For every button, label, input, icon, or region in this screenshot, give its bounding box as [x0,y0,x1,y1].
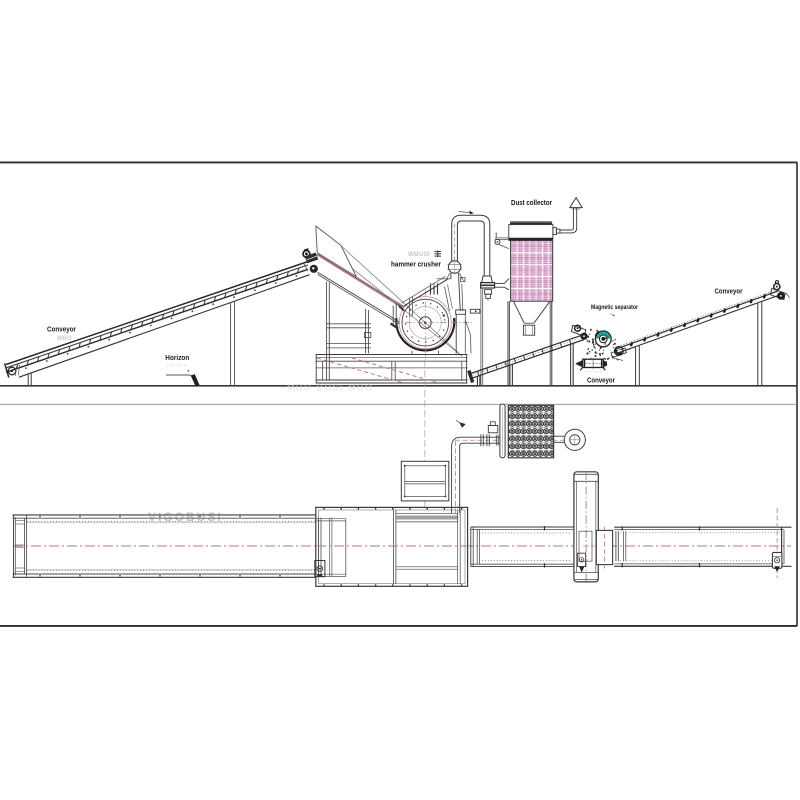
svg-text:1 for lem to: 1 for lem to [166,363,188,368]
svg-text:Horizon: Horizon [165,355,189,362]
svg-text:Conveyor: Conveyor [47,327,76,334]
svg-text:VIGOBUSI: VIGOBUSI [148,510,223,524]
svg-text:hammer crusher: hammer crusher [391,260,441,269]
svg-text:WBU: WBU [57,336,71,342]
svg-text:Dust collector: Dust collector [511,200,552,207]
svg-text:WBUSI: WBUSI [408,251,430,258]
svg-text:Conveyor: Conveyor [587,378,615,385]
svg-text:Magnetic separator: Magnetic separator [591,304,638,311]
svg-text:MBO BUSI MBO: MBO BUSI MBO [287,383,374,393]
svg-text:Conveyor: Conveyor [715,289,743,296]
